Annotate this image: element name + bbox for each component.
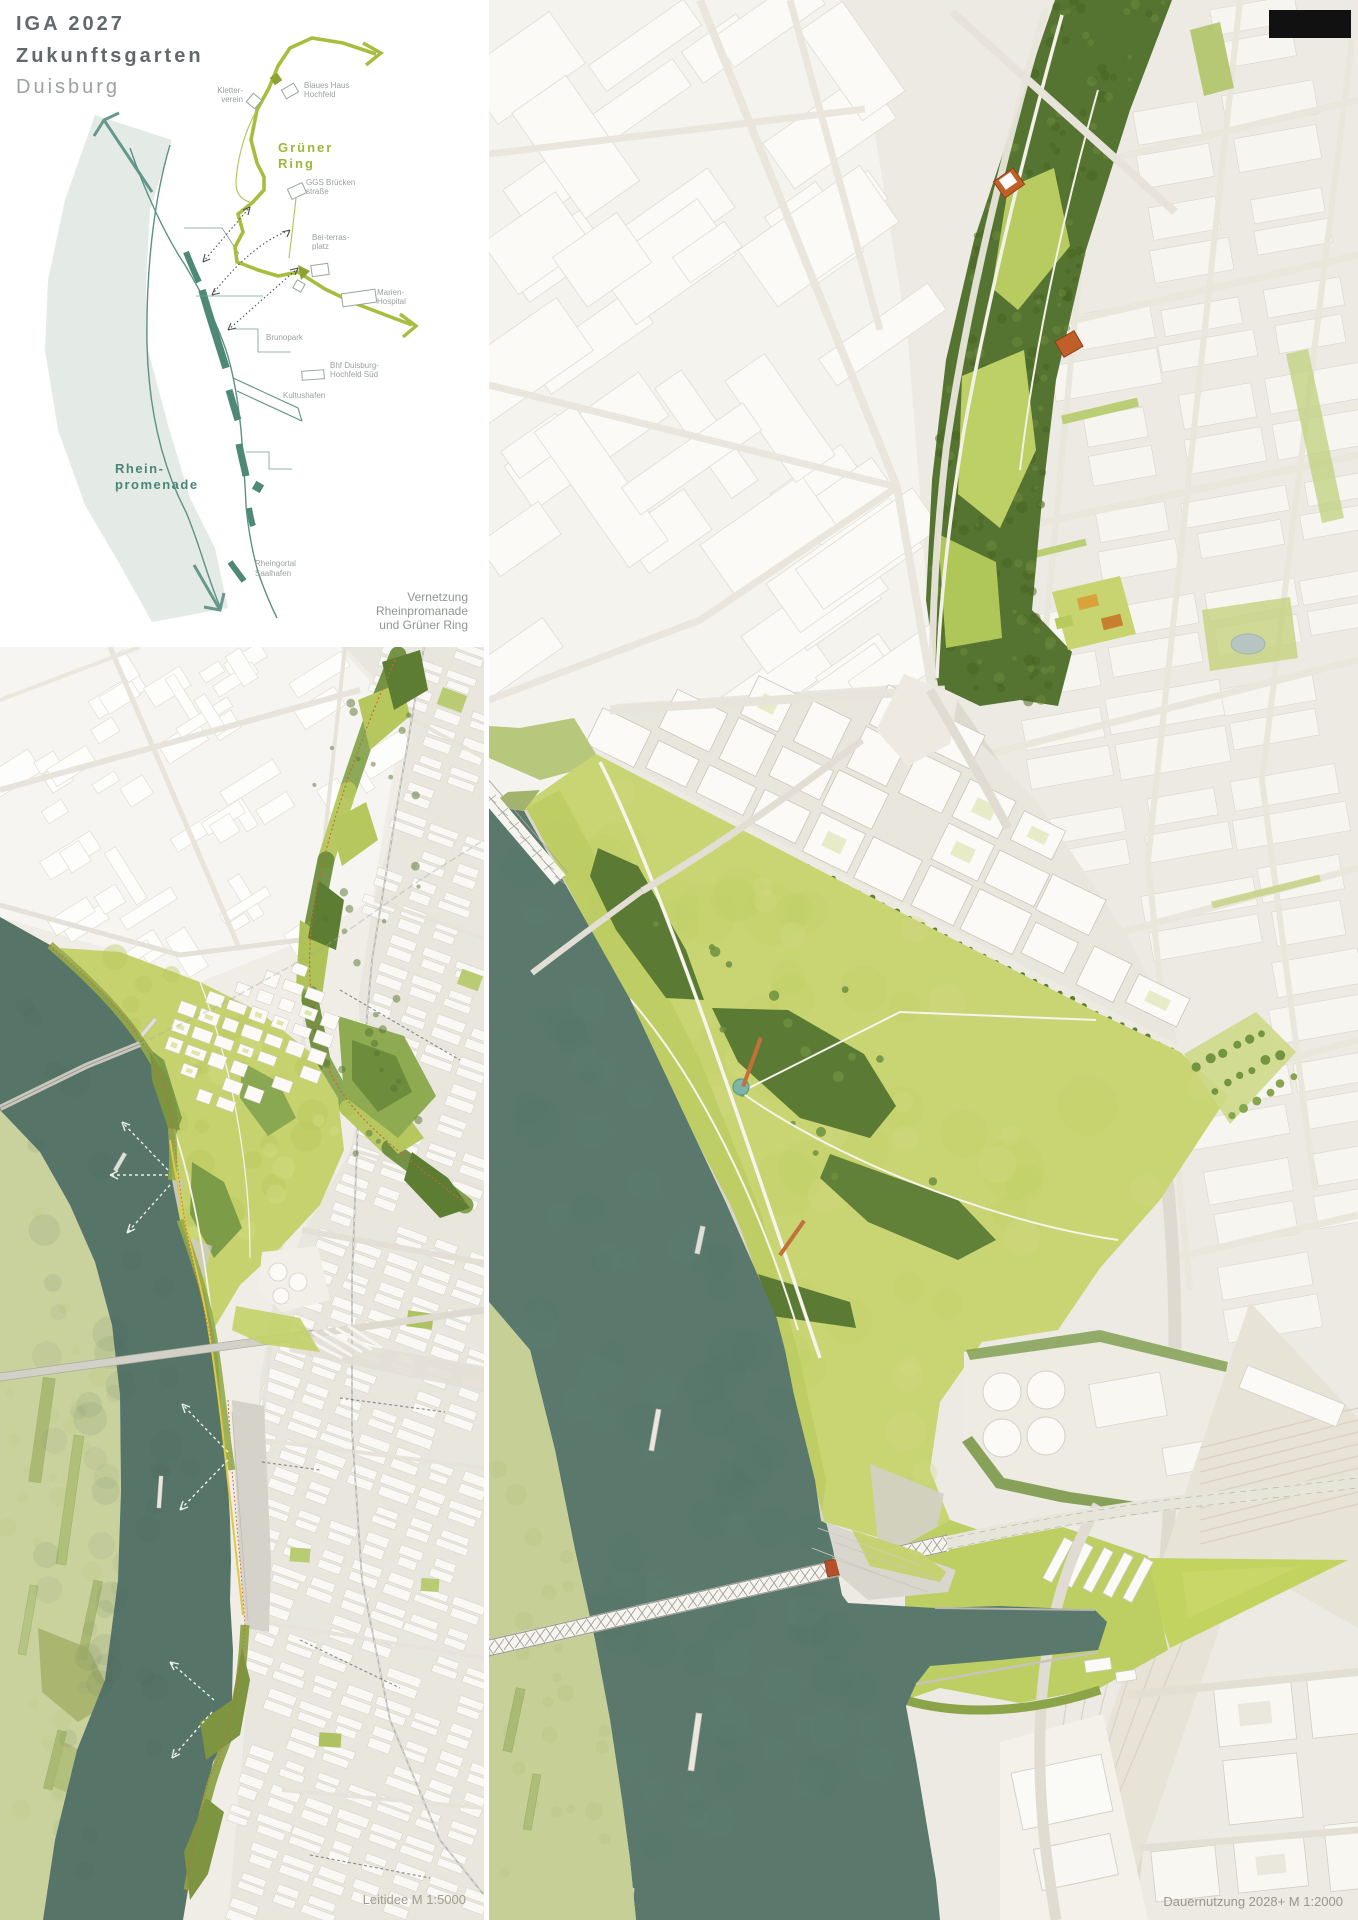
svg-text:Brunopark: Brunopark — [266, 333, 304, 342]
svg-text:straße: straße — [306, 187, 329, 196]
svg-text:Zukunftsgarten: Zukunftsgarten — [16, 45, 204, 67]
svg-text:platz: platz — [312, 242, 329, 251]
svg-text:verein: verein — [221, 95, 243, 104]
svg-text:Rheinpromanade: Rheinpromanade — [376, 604, 468, 618]
svg-text:Rheingortal: Rheingortal — [255, 559, 296, 568]
svg-text:Vernetzung: Vernetzung — [407, 590, 468, 604]
svg-text:Blaues Haus: Blaues Haus — [304, 81, 349, 90]
svg-text:Bhf Duisburg-: Bhf Duisburg- — [330, 361, 379, 370]
svg-text:Bei-terras-: Bei-terras- — [312, 233, 350, 242]
svg-text:IGA 2027: IGA 2027 — [16, 13, 125, 35]
svg-text:Grüner: Grüner — [278, 140, 333, 155]
svg-text:Duisburg: Duisburg — [16, 76, 120, 98]
svg-text:Hospital: Hospital — [377, 297, 406, 306]
svg-text:Hochfeld: Hochfeld — [304, 90, 336, 99]
svg-text:und Grüner Ring: und Grüner Ring — [379, 618, 468, 632]
svg-text:Leitidee M 1:5000: Leitidee M 1:5000 — [363, 1892, 466, 1907]
svg-text:Marien-: Marien- — [377, 288, 404, 297]
svg-text:Kletter-: Kletter- — [217, 86, 243, 95]
svg-text:promenade: promenade — [115, 477, 199, 492]
svg-text:GGS Brücken: GGS Brücken — [306, 178, 355, 187]
svg-text:Hochfeld Süd: Hochfeld Süd — [330, 370, 378, 379]
svg-text:Dauernutzung 2028+ M 1:2000: Dauernutzung 2028+ M 1:2000 — [1163, 1894, 1343, 1909]
svg-text:Kultushafen: Kultushafen — [283, 391, 325, 400]
svg-text:Rhein-: Rhein- — [115, 461, 164, 476]
svg-text:Saalhafen: Saalhafen — [255, 569, 291, 578]
svg-text:Ring: Ring — [278, 156, 315, 171]
